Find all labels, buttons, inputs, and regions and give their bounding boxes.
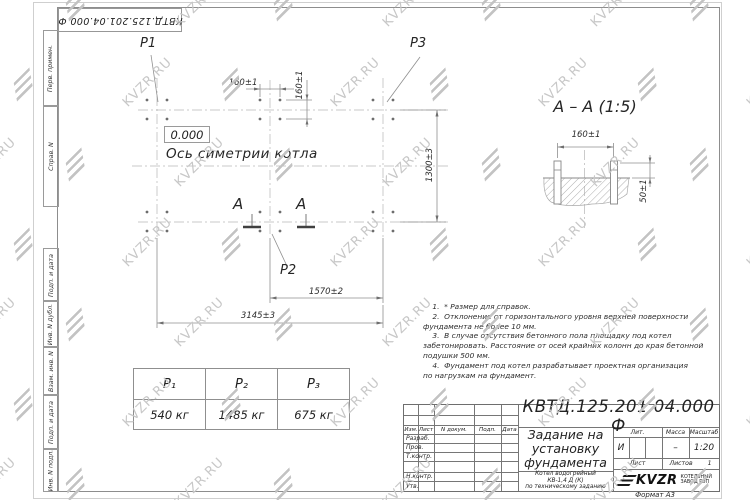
kvzr-brand: KVZR bbox=[636, 473, 678, 488]
top-stamp-doc-number: КВТД.125.201.04.000 Ф bbox=[58, 15, 183, 26]
margin-label-inv-dubl: Инв. N дубл. bbox=[43, 300, 59, 348]
note-line: по нагрузкам на фундамент. bbox=[423, 371, 723, 381]
drawing-sheet: КВТД.125.201.04.000 Ф Перв. примен. Спра… bbox=[0, 0, 750, 500]
technical-notes: 1. * Размер для справок. 2. Отклонение о… bbox=[423, 302, 723, 380]
level-mark: 0.000 bbox=[164, 126, 210, 143]
section-dim-50: 50±1 bbox=[639, 173, 649, 209]
section-view-title: А – А (1:5) bbox=[540, 97, 650, 116]
tb-utv: Утв. bbox=[404, 481, 436, 491]
load-table-value-p2: 1485 кг bbox=[206, 400, 278, 430]
tb-sheets: Листов 1 bbox=[662, 458, 719, 469]
tb-lit-value: И bbox=[613, 437, 629, 458]
dim-3145: 3145±3 bbox=[232, 311, 284, 321]
tb-mass-label: Масса bbox=[662, 427, 689, 437]
tb-logo-cell: KVZR КОТЕЛЬНЫЙ ЗАВОД РЭП bbox=[613, 469, 719, 491]
section-letter-right: А bbox=[296, 195, 306, 213]
load-table: P₁ P₂ P₃ 540 кг 1485 кг 675 кг bbox=[133, 368, 350, 430]
load-point-p1-label: P1 bbox=[140, 36, 156, 51]
tb-subtitle: Котел водогрейный КВ-1,4 Д (К) по технич… bbox=[518, 471, 613, 491]
kvzr-brand-sub: КОТЕЛЬНЫЙ ЗАВОД РЭП bbox=[681, 475, 712, 486]
margin-label-podp-data-1: Подп. и дата bbox=[43, 248, 59, 302]
tb-sheet-label: Лист bbox=[613, 458, 662, 469]
tb-col-list: Лист bbox=[418, 425, 434, 434]
load-table-value-p3: 675 кг bbox=[278, 400, 350, 430]
dim-1300: 1300±3 bbox=[425, 143, 435, 187]
margin-label-vzam-inv: Взам. инв. N bbox=[43, 346, 59, 396]
tb-col-ndocum: N докум. bbox=[434, 425, 474, 434]
note-line: 3. В случае отсутствия бетонного пола пл… bbox=[423, 331, 723, 341]
text-layer: КВТД.125.201.04.000 Ф Перв. примен. Спра… bbox=[0, 0, 750, 500]
load-point-p2-label: P2 bbox=[280, 263, 296, 278]
note-line: 4. Фундамент под котел разрабатывает про… bbox=[423, 361, 723, 371]
section-letter-left: А bbox=[233, 195, 243, 213]
tb-sheets-label: Листов bbox=[669, 460, 692, 467]
load-table-header-p2: P₂ bbox=[206, 369, 278, 400]
tb-mass-value: – bbox=[662, 437, 689, 458]
note-line: 2. Отклонение от горизонтального уровня … bbox=[423, 312, 723, 322]
tb-razrab: Разраб. bbox=[404, 434, 436, 443]
load-table-value-p1: 540 кг bbox=[134, 400, 206, 430]
tb-col-izm: Изм. bbox=[404, 425, 418, 434]
dim-1570: 1570±2 bbox=[300, 287, 352, 297]
tb-prov: Пров. bbox=[404, 443, 436, 452]
tb-scale-label: Масштаб bbox=[689, 427, 719, 437]
tb-nkontr: Н.контр. bbox=[404, 472, 436, 481]
symmetry-axis-label: Ось симетрии котла bbox=[166, 146, 318, 162]
note-line: забетонировать. Расстояние от осей крайн… bbox=[423, 341, 723, 351]
tb-lit-label: Лит. bbox=[613, 427, 662, 437]
kvzr-logo-icon bbox=[616, 475, 637, 486]
tb-col-data: Дата bbox=[501, 425, 518, 434]
note-line: фундамента не более 10 мм. bbox=[423, 322, 723, 332]
tb-sheets-value: 1 bbox=[708, 460, 712, 467]
dim-160-horizontal: 160±1 bbox=[226, 78, 260, 88]
top-stamp-box: КВТД.125.201.04.000 Ф bbox=[58, 8, 182, 32]
margin-label-sprav-n: Справ. N bbox=[43, 105, 59, 207]
tb-title: Задание на установку фундамента bbox=[518, 427, 613, 471]
tb-scale-value: 1:20 bbox=[689, 437, 719, 458]
tb-tkontr: Т.контр. bbox=[404, 452, 436, 461]
tb-col-podp: Подп. bbox=[474, 425, 501, 434]
note-line: 1. * Размер для справок. bbox=[423, 302, 723, 312]
section-dim-160: 160±1 bbox=[558, 130, 614, 140]
format-label: Формат А3 bbox=[585, 491, 725, 499]
tb-doc-number: КВТД.125.201.04.000 Ф bbox=[518, 405, 719, 427]
note-line: подушки 500 мм. bbox=[423, 351, 723, 361]
load-table-header-p3: P₃ bbox=[278, 369, 350, 400]
title-block: Изм. Лист N докум. Подп. Дата Разраб. Пр… bbox=[403, 404, 720, 492]
margin-label-perv-primen: Перв. примен. bbox=[43, 30, 59, 107]
load-point-p3-label: P3 bbox=[410, 36, 426, 51]
margin-label-inv-podl: Инв. N подл. bbox=[43, 448, 59, 492]
load-table-header-p1: P₁ bbox=[134, 369, 206, 400]
dim-160-vertical: 160±1 bbox=[295, 68, 305, 102]
margin-label-podp-data-2: Подп. и дата bbox=[43, 394, 59, 450]
